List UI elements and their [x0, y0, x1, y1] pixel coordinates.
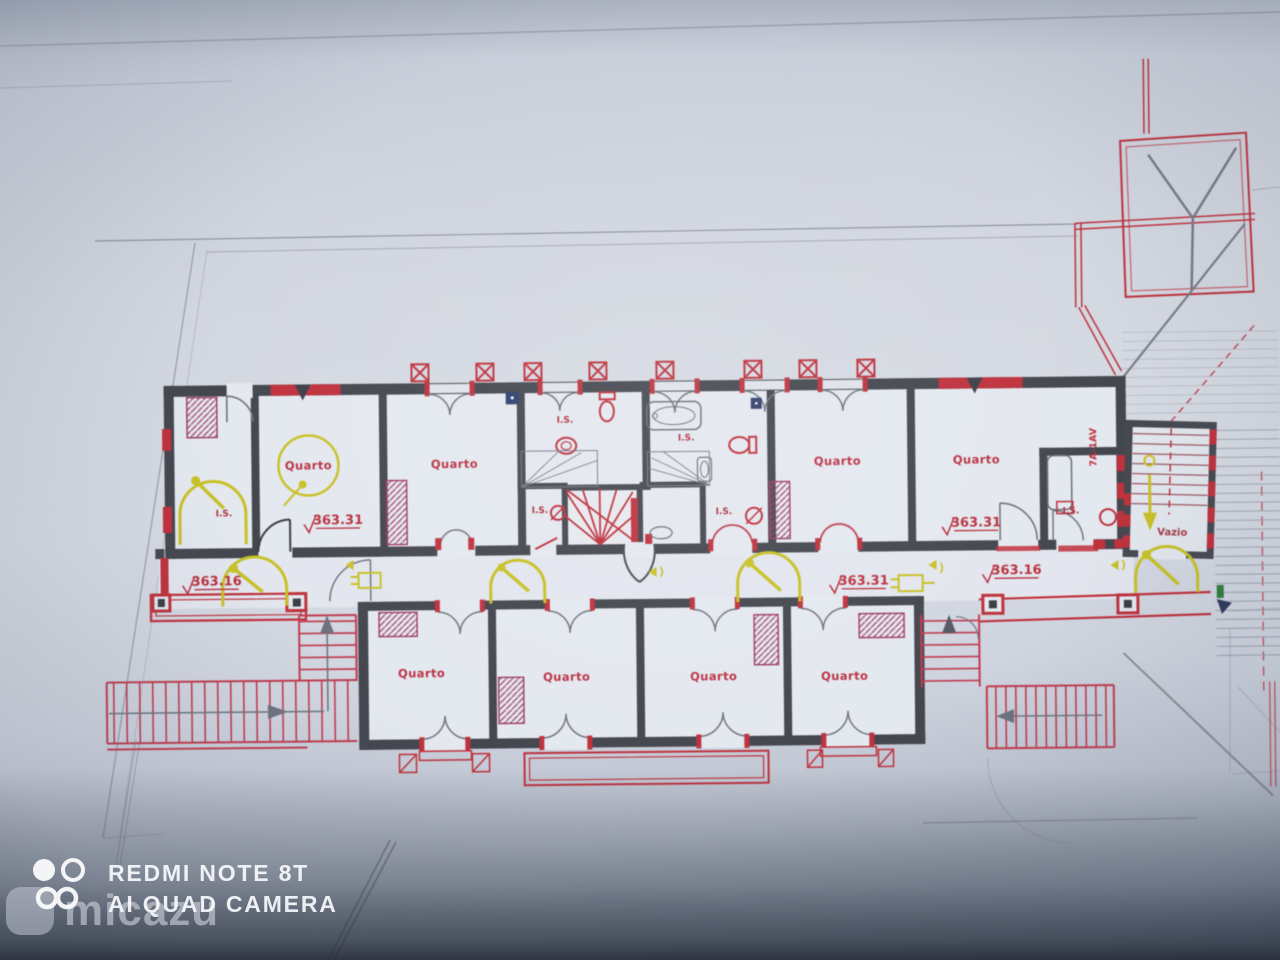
svg-text:363.31: 363.31	[951, 515, 1001, 531]
right-staircase	[921, 613, 1114, 749]
camera-watermark-line1: REDMI NOTE 8T	[108, 858, 338, 889]
room-label: Quarto	[285, 458, 332, 472]
is-label: I.S.	[1063, 506, 1080, 516]
is-label: I.S.	[216, 509, 233, 519]
camera-watermark: REDMI NOTE 8T AI QUAD CAMERA	[30, 856, 338, 920]
wall-tag: 7A-1AV	[1088, 427, 1099, 466]
vazio-label: Vazio	[1157, 527, 1187, 539]
room-label: Quarto	[821, 669, 868, 683]
is-label: I.S.	[532, 506, 549, 516]
room-label: Quarto	[953, 452, 1000, 466]
is-label: I.S.	[716, 507, 733, 517]
svg-text:363.31: 363.31	[838, 573, 888, 589]
photographed-floor-plan: 7A-1AV Quarto Quarto Quarto Quarto Quart…	[0, 0, 1280, 960]
is-label: I.S.	[678, 433, 695, 443]
green-marker	[1217, 585, 1224, 598]
is-label: I.S.	[557, 416, 574, 426]
left-staircase	[106, 615, 357, 750]
room-label: Quarto	[814, 454, 861, 468]
annex-vazio	[1126, 423, 1213, 560]
svg-text:363.16: 363.16	[191, 574, 241, 590]
room-label: Quarto	[431, 457, 478, 471]
floor-plan-drawing: 7A-1AV Quarto Quarto Quarto Quarto Quart…	[0, 0, 1280, 960]
camera-logo-icon	[30, 856, 94, 916]
camera-watermark-line2: AI QUAD CAMERA	[108, 889, 338, 920]
room-label: Quarto	[398, 666, 445, 680]
room-label: Quarto	[543, 670, 590, 684]
svg-text:363.31: 363.31	[313, 513, 363, 529]
spiral-staircase	[565, 487, 641, 548]
room-label: Quarto	[690, 669, 737, 683]
svg-text:363.16: 363.16	[991, 563, 1041, 579]
